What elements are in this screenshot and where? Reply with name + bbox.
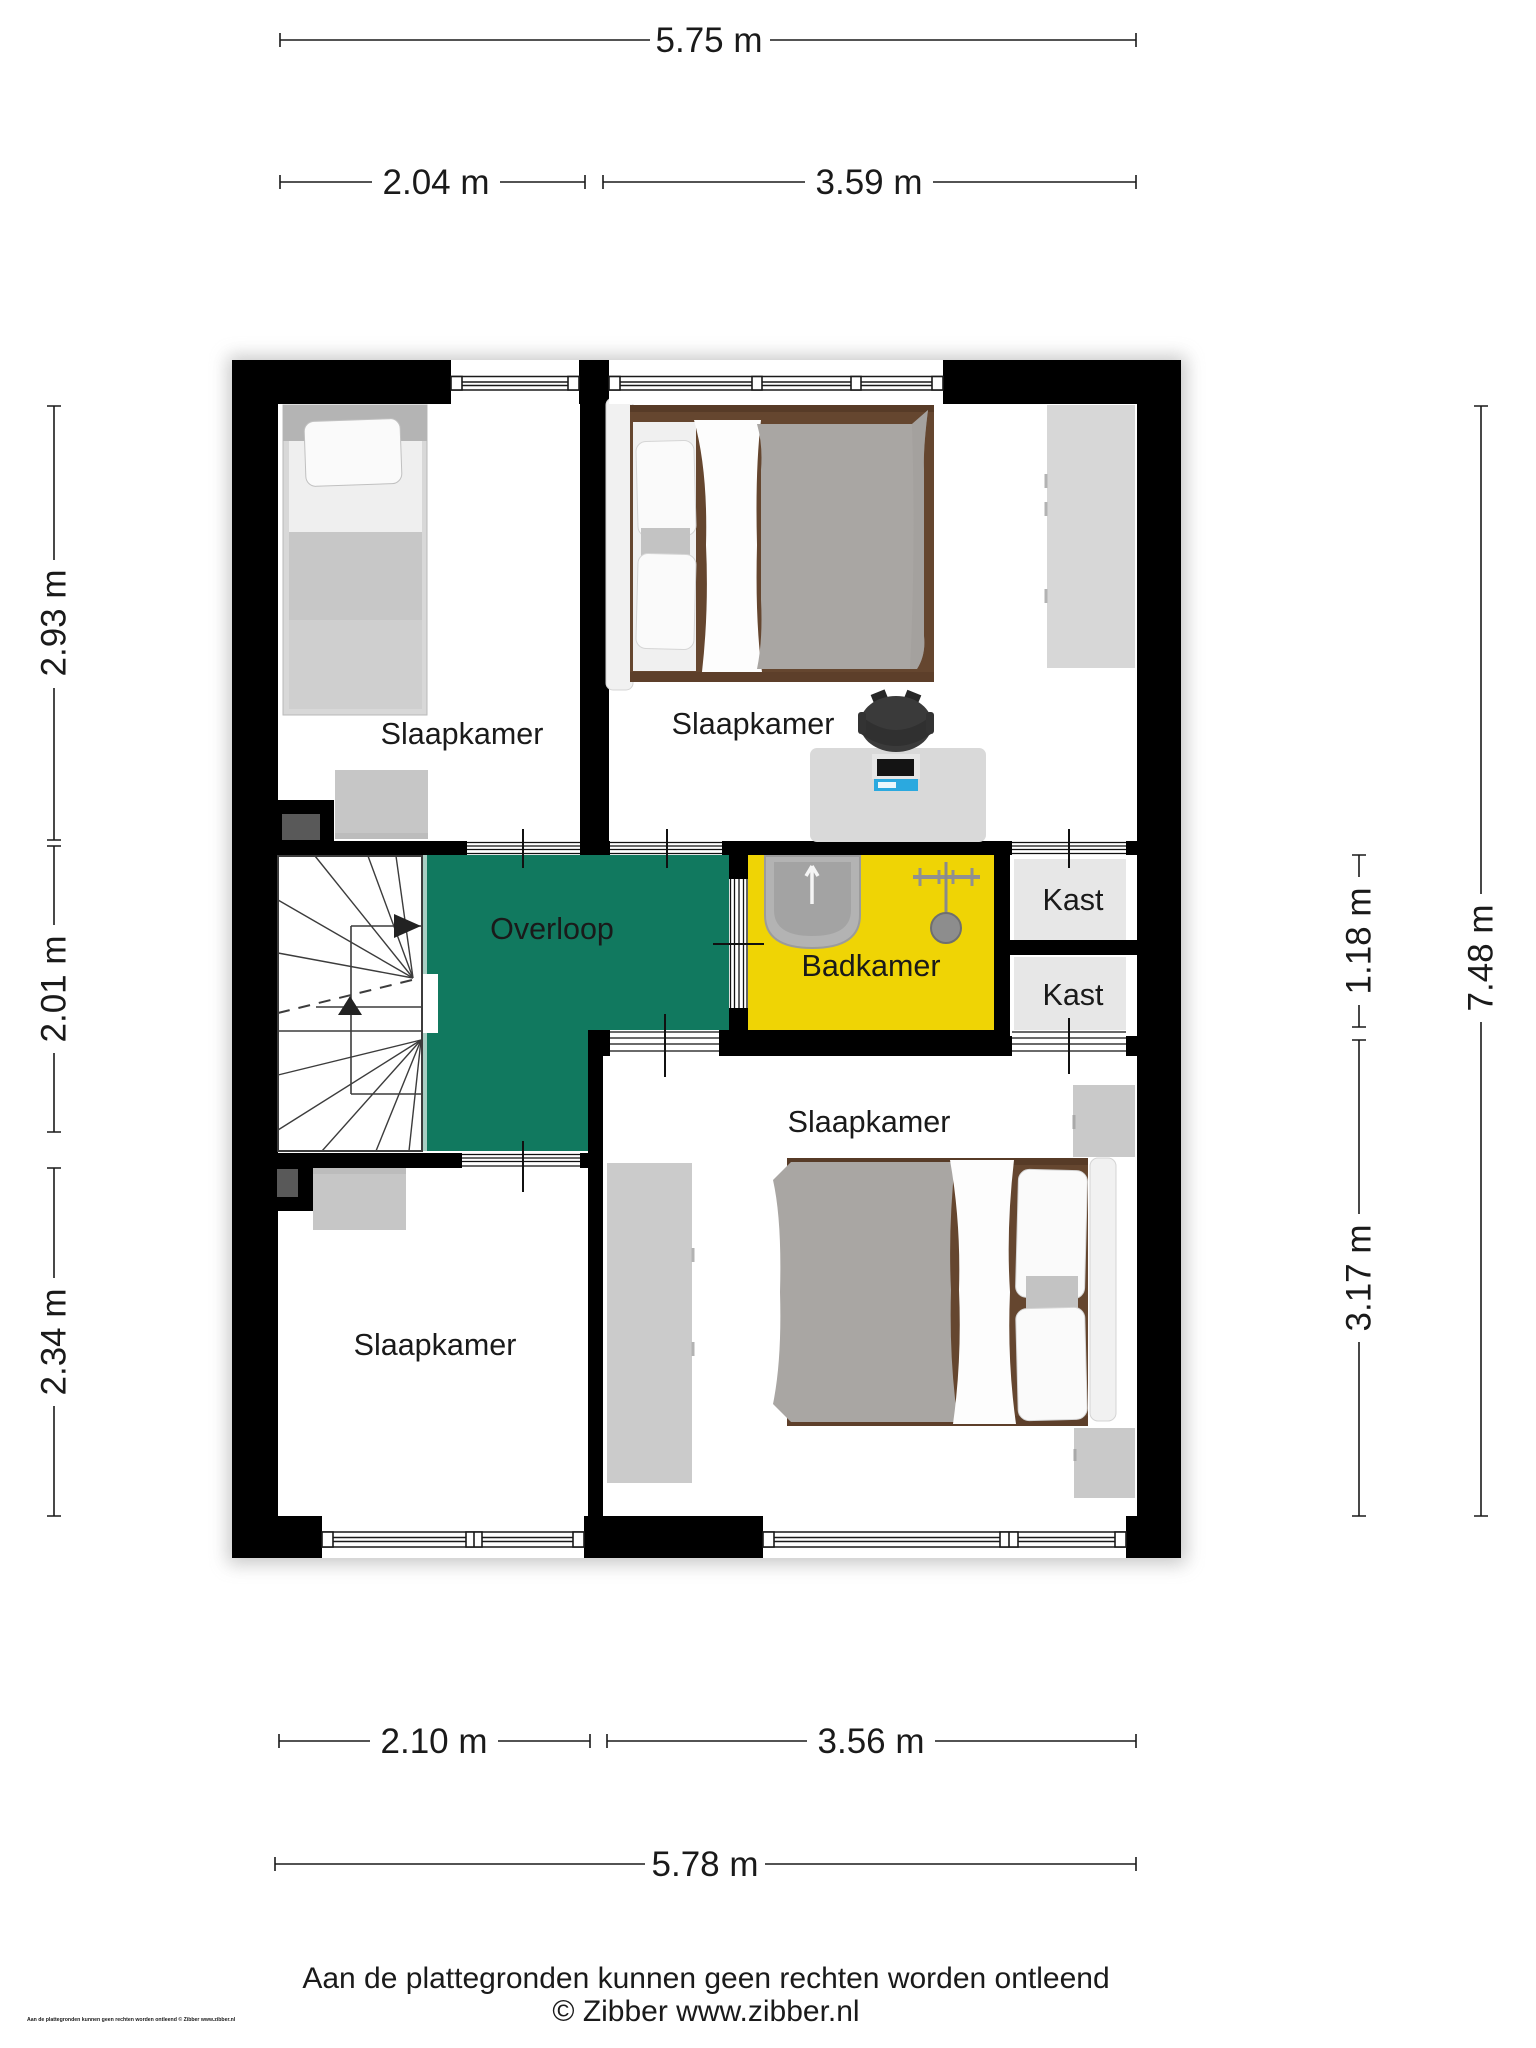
svg-text:5.78 m: 5.78 m bbox=[652, 1845, 759, 1884]
svg-text:2.93 m: 2.93 m bbox=[35, 570, 74, 677]
svg-text:5.75 m: 5.75 m bbox=[656, 21, 763, 60]
svg-text:3.17 m: 3.17 m bbox=[1340, 1225, 1379, 1332]
svg-text:Slaapkamer: Slaapkamer bbox=[381, 717, 544, 751]
svg-text:Kast: Kast bbox=[1042, 883, 1104, 917]
svg-text:Slaapkamer: Slaapkamer bbox=[788, 1105, 951, 1139]
svg-text:2.34 m: 2.34 m bbox=[35, 1289, 74, 1396]
svg-text:3.59 m: 3.59 m bbox=[816, 163, 923, 202]
svg-text:7.48 m: 7.48 m bbox=[1462, 905, 1501, 1012]
svg-text:2.04 m: 2.04 m bbox=[383, 163, 490, 202]
svg-text:Badkamer: Badkamer bbox=[801, 949, 940, 983]
svg-text:Slaapkamer: Slaapkamer bbox=[672, 707, 835, 741]
svg-text:Aan de plattegronden kunnen ge: Aan de plattegronden kunnen geen rechten… bbox=[27, 2016, 236, 2023]
svg-text:Slaapkamer: Slaapkamer bbox=[354, 1328, 517, 1362]
svg-text:Overloop: Overloop bbox=[490, 912, 614, 946]
svg-text:1.18 m: 1.18 m bbox=[1340, 888, 1379, 995]
svg-text:Aan de plattegronden kunnen ge: Aan de plattegronden kunnen geen rechten… bbox=[302, 1962, 1109, 1995]
svg-text:2.01 m: 2.01 m bbox=[35, 936, 74, 1043]
svg-text:© Zibber www.zibber.nl: © Zibber www.zibber.nl bbox=[552, 1995, 859, 2028]
svg-text:Kast: Kast bbox=[1042, 978, 1104, 1012]
svg-text:3.56 m: 3.56 m bbox=[818, 1722, 925, 1761]
svg-text:2.10 m: 2.10 m bbox=[381, 1722, 488, 1761]
